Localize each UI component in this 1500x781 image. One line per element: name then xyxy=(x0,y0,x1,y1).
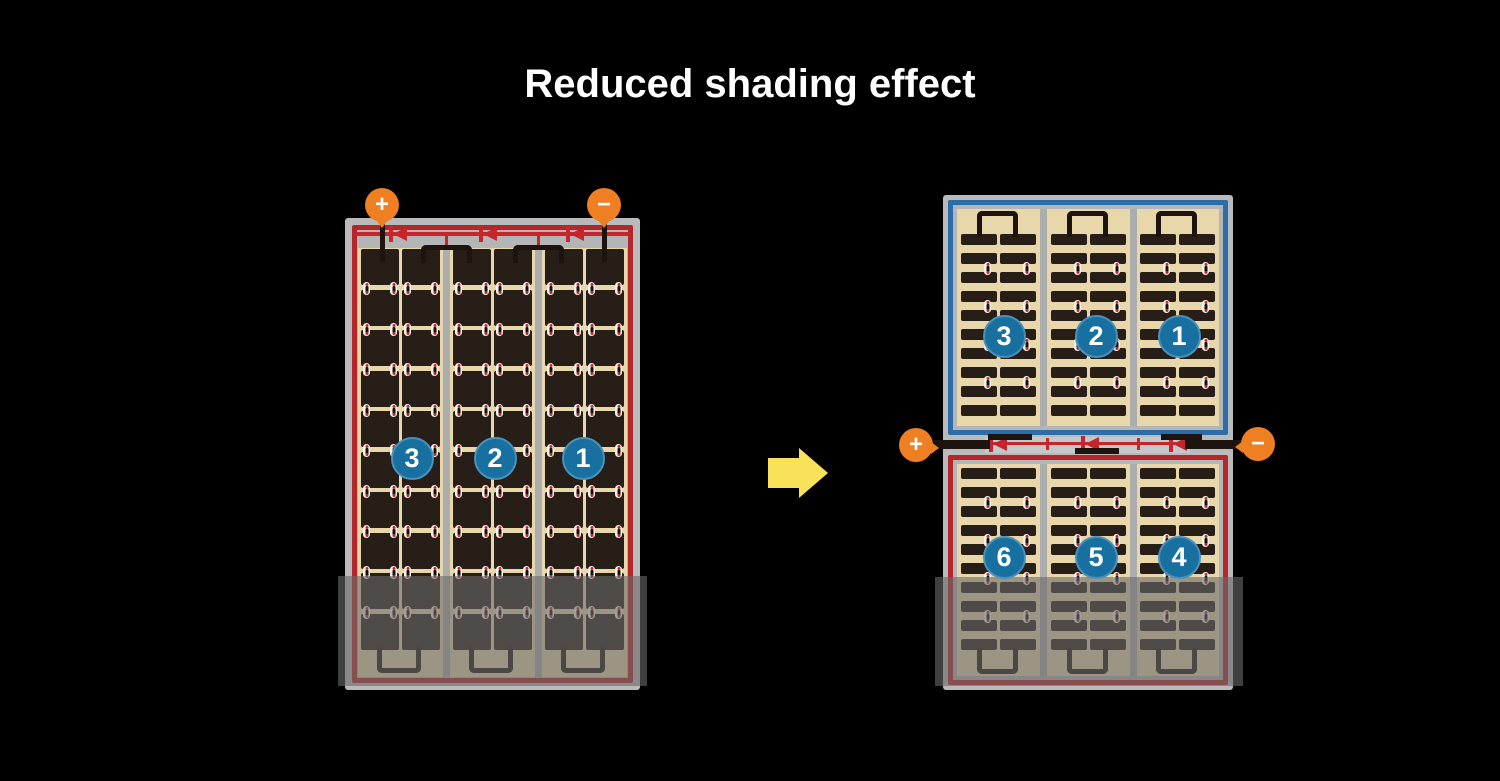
solar-cell xyxy=(961,367,997,378)
solar-cell xyxy=(1000,386,1036,397)
column-separator xyxy=(1130,209,1137,426)
solar-cell xyxy=(961,468,997,479)
cell-connector xyxy=(390,485,397,498)
cell-connector xyxy=(404,363,411,376)
solar-cell xyxy=(1090,506,1126,517)
cell-connector xyxy=(615,282,622,295)
cell-connector xyxy=(547,323,554,336)
solar-cell xyxy=(1140,386,1176,397)
solar-cell xyxy=(961,487,997,498)
diagram-canvas: Reduced shading effect +−321 +−321654 xyxy=(0,0,1500,781)
cell-connector xyxy=(431,404,438,417)
cell-connector xyxy=(574,363,581,376)
solar-cell xyxy=(545,371,583,407)
cell-connector xyxy=(984,376,991,389)
cell-connector xyxy=(588,404,595,417)
cell-connector xyxy=(1023,496,1030,509)
plus-terminal: + xyxy=(365,188,399,222)
solar-cell xyxy=(1140,367,1176,378)
solar-cell xyxy=(1090,386,1126,397)
cell-connector xyxy=(1074,496,1081,509)
string-number-badge: 5 xyxy=(1075,536,1118,579)
cell-connector xyxy=(1202,300,1209,313)
cell-connector xyxy=(431,282,438,295)
junction-tap xyxy=(1046,438,1049,450)
solar-cell xyxy=(361,533,399,569)
cell-connector xyxy=(1023,534,1030,547)
solar-cell xyxy=(1140,291,1176,302)
string-number-badge: 3 xyxy=(391,437,434,480)
cell-connector xyxy=(615,323,622,336)
cell-connector xyxy=(482,404,489,417)
shading-overlay xyxy=(935,577,1243,686)
string-number-badge: 6 xyxy=(983,536,1026,579)
solar-cell xyxy=(1179,253,1215,264)
solar-cell xyxy=(494,290,532,326)
solar-cell xyxy=(453,290,491,326)
solar-cell xyxy=(1179,506,1215,517)
solar-cell xyxy=(1140,506,1176,517)
solar-cell xyxy=(1090,525,1126,536)
cell-connector xyxy=(574,323,581,336)
cell-connector xyxy=(523,525,530,538)
cell-connector xyxy=(363,404,370,417)
solar-cell xyxy=(1090,468,1126,479)
cell-connector xyxy=(431,525,438,538)
cell-connector xyxy=(496,404,503,417)
cell-connector xyxy=(455,485,462,498)
cell-connector xyxy=(482,323,489,336)
cell-connector xyxy=(455,444,462,457)
solar-cell xyxy=(1179,386,1215,397)
cell-connector xyxy=(523,485,530,498)
cell-connector xyxy=(390,525,397,538)
cell-connector xyxy=(455,404,462,417)
cell-connector xyxy=(588,525,595,538)
cell-connector xyxy=(404,282,411,295)
cell-connector xyxy=(1202,338,1209,351)
cell-connector xyxy=(1113,262,1120,275)
minus-terminal-label: − xyxy=(1251,432,1265,456)
minus-terminal: − xyxy=(1241,427,1275,461)
cell-connector xyxy=(1023,300,1030,313)
solar-cell xyxy=(1000,506,1036,517)
bypass-diode-icon xyxy=(393,227,407,241)
cell-connector xyxy=(615,363,622,376)
solar-cell xyxy=(1000,525,1036,536)
cell-connector xyxy=(615,444,622,457)
solar-cell xyxy=(961,291,997,302)
solar-cell xyxy=(1090,367,1126,378)
solar-cell xyxy=(961,525,997,536)
solar-cell xyxy=(1140,487,1176,498)
string-number-badge: 3 xyxy=(983,315,1026,358)
solar-cell xyxy=(402,290,440,326)
cell-connector xyxy=(1202,534,1209,547)
cell-connector xyxy=(404,404,411,417)
interconnect-bracket xyxy=(513,245,564,263)
minus-terminal-label: − xyxy=(597,193,611,217)
cell-connector xyxy=(588,323,595,336)
cell-connector xyxy=(1202,496,1209,509)
interconnect-bar xyxy=(1075,448,1119,454)
cell-connector xyxy=(482,525,489,538)
cell-connector xyxy=(1074,300,1081,313)
cell-connector xyxy=(615,525,622,538)
transform-arrow-icon xyxy=(768,445,830,501)
shading-overlay xyxy=(338,576,647,686)
cell-connector xyxy=(455,525,462,538)
cell-connector xyxy=(984,496,991,509)
solar-cell xyxy=(1051,506,1087,517)
junction-tap xyxy=(1137,438,1140,450)
solar-cell xyxy=(1000,405,1036,416)
string-number-badge: 1 xyxy=(562,437,605,480)
cell-connector xyxy=(1163,262,1170,275)
solar-cell xyxy=(1051,386,1087,397)
interconnect-bracket xyxy=(421,245,472,263)
cell-connector xyxy=(588,282,595,295)
interconnect-bar xyxy=(988,434,1032,440)
solar-cell xyxy=(961,405,997,416)
cell-connector xyxy=(523,282,530,295)
cell-connector xyxy=(496,363,503,376)
solar-cell xyxy=(961,506,997,517)
cell-connector xyxy=(1023,376,1030,389)
cell-connector xyxy=(431,485,438,498)
page-title: Reduced shading effect xyxy=(0,62,1500,107)
cell-connector xyxy=(574,485,581,498)
plus-terminal-label: + xyxy=(375,193,389,217)
cell-connector xyxy=(404,485,411,498)
solar-cell xyxy=(1179,291,1215,302)
busbar-tap xyxy=(445,236,448,245)
bypass-diode-icon xyxy=(570,227,584,241)
cell-connector xyxy=(547,404,554,417)
cell-connector xyxy=(390,404,397,417)
cell-connector xyxy=(547,282,554,295)
solar-cell xyxy=(361,290,399,326)
cell-connector xyxy=(588,485,595,498)
cell-connector xyxy=(523,404,530,417)
solar-cell xyxy=(1000,272,1036,283)
interconnect-bracket xyxy=(1156,211,1197,237)
cell-connector xyxy=(1113,300,1120,313)
solar-cell xyxy=(361,371,399,407)
solar-cell xyxy=(1140,405,1176,416)
solar-cell xyxy=(1051,525,1087,536)
cell-connector xyxy=(363,282,370,295)
solar-cell xyxy=(1179,272,1215,283)
cell-connector xyxy=(431,323,438,336)
cell-connector xyxy=(574,404,581,417)
solar-cell xyxy=(1140,253,1176,264)
solar-cell xyxy=(1140,272,1176,283)
cell-connector xyxy=(1023,262,1030,275)
solar-cell xyxy=(494,533,532,569)
cell-connector xyxy=(1163,376,1170,389)
cell-connector xyxy=(496,282,503,295)
cell-connector xyxy=(1113,376,1120,389)
solar-cell xyxy=(961,253,997,264)
cell-connector xyxy=(431,363,438,376)
solar-cell xyxy=(1051,367,1087,378)
busbar-tap xyxy=(537,236,540,245)
solar-cell xyxy=(1000,367,1036,378)
solar-cell xyxy=(586,533,624,569)
solar-cell xyxy=(494,371,532,407)
cell-connector xyxy=(1202,262,1209,275)
solar-cell xyxy=(1051,468,1087,479)
solar-cell xyxy=(1000,468,1036,479)
cell-connector xyxy=(482,363,489,376)
solar-cell xyxy=(1090,253,1126,264)
solar-cell xyxy=(545,533,583,569)
interconnect-bracket xyxy=(1067,211,1108,237)
cell-connector xyxy=(404,525,411,538)
solar-cell xyxy=(1051,405,1087,416)
solar-cell xyxy=(1179,487,1215,498)
solar-cell xyxy=(453,371,491,407)
cell-connector xyxy=(1074,376,1081,389)
cell-connector xyxy=(455,323,462,336)
cell-connector xyxy=(574,525,581,538)
solar-cell xyxy=(1090,291,1126,302)
cell-connector xyxy=(496,525,503,538)
cell-connector xyxy=(363,525,370,538)
string-number-badge: 2 xyxy=(474,437,517,480)
solar-cell xyxy=(961,272,997,283)
solar-cell xyxy=(1140,468,1176,479)
solar-cell xyxy=(1090,405,1126,416)
cell-connector xyxy=(1163,496,1170,509)
cell-connector xyxy=(547,525,554,538)
bypass-diode-icon xyxy=(483,227,497,241)
cell-connector xyxy=(1202,376,1209,389)
cell-connector xyxy=(1113,496,1120,509)
cell-connector xyxy=(390,363,397,376)
solar-cell xyxy=(586,371,624,407)
solar-cell xyxy=(545,290,583,326)
cell-connector xyxy=(390,323,397,336)
arrow-head xyxy=(799,448,828,498)
solar-cell xyxy=(1090,487,1126,498)
solar-cell xyxy=(1179,367,1215,378)
cell-connector xyxy=(984,262,991,275)
cell-connector xyxy=(455,363,462,376)
left-module-diagram: +−321 xyxy=(345,190,640,700)
cell-connector xyxy=(547,444,554,457)
cell-connector xyxy=(523,444,530,457)
cell-connector xyxy=(363,485,370,498)
solar-cell xyxy=(1179,525,1215,536)
string-number-badge: 2 xyxy=(1075,315,1118,358)
cell-connector xyxy=(496,485,503,498)
solar-cell xyxy=(453,533,491,569)
right-module-diagram: +−321654 xyxy=(898,190,1288,700)
cell-connector xyxy=(482,282,489,295)
solar-cell xyxy=(586,290,624,326)
cell-connector xyxy=(1074,262,1081,275)
solar-cell xyxy=(1090,272,1126,283)
cell-connector xyxy=(523,363,530,376)
cell-connector xyxy=(363,444,370,457)
cell-connector xyxy=(1163,300,1170,313)
interconnect-bracket xyxy=(977,211,1018,237)
cell-connector xyxy=(615,404,622,417)
cell-connector xyxy=(496,323,503,336)
solar-cell xyxy=(1000,291,1036,302)
cell-connector xyxy=(390,282,397,295)
minus-terminal: − xyxy=(587,188,621,222)
solar-cell xyxy=(1051,291,1087,302)
cell-connector xyxy=(547,485,554,498)
solar-cell xyxy=(402,533,440,569)
column-separator xyxy=(1040,209,1047,426)
cell-connector xyxy=(363,323,370,336)
cell-connector xyxy=(547,363,554,376)
arrow-shaft xyxy=(768,458,799,488)
cell-connector xyxy=(482,485,489,498)
solar-cell xyxy=(1051,272,1087,283)
solar-cell xyxy=(1051,487,1087,498)
string-number-badge: 4 xyxy=(1158,536,1201,579)
solar-cell xyxy=(1051,253,1087,264)
cell-connector xyxy=(574,282,581,295)
solar-cell xyxy=(1179,468,1215,479)
cell-connector xyxy=(363,363,370,376)
solar-cell xyxy=(1000,487,1036,498)
string-number-badge: 1 xyxy=(1158,315,1201,358)
plus-terminal-label: + xyxy=(909,433,923,457)
solar-cell xyxy=(402,371,440,407)
cell-connector xyxy=(615,485,622,498)
solar-cell xyxy=(1179,405,1215,416)
solar-cell xyxy=(961,386,997,397)
cell-connector xyxy=(523,323,530,336)
cell-connector xyxy=(588,363,595,376)
solar-cell xyxy=(1140,525,1176,536)
cell-connector xyxy=(455,282,462,295)
cell-connector xyxy=(404,323,411,336)
solar-cell xyxy=(1000,253,1036,264)
plus-terminal: + xyxy=(899,428,933,462)
cell-connector xyxy=(984,300,991,313)
